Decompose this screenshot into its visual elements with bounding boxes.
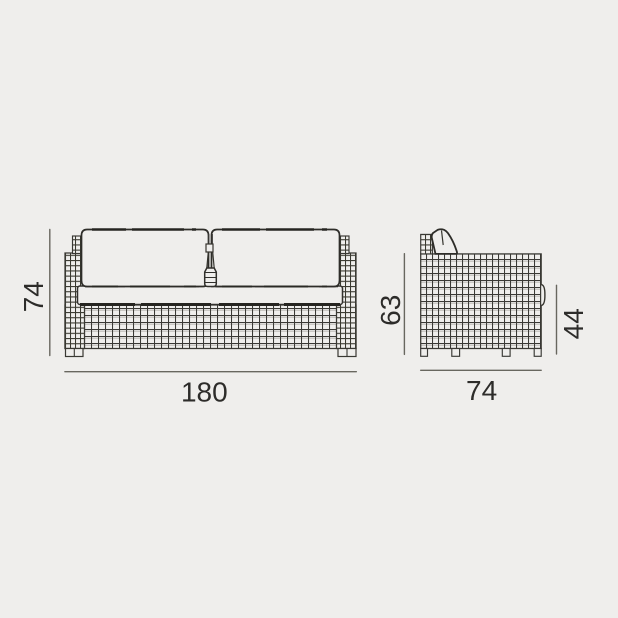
svg-text:74: 74	[18, 281, 49, 312]
svg-text:74: 74	[466, 375, 497, 406]
svg-text:63: 63	[375, 295, 406, 326]
svg-text:44: 44	[558, 308, 589, 339]
svg-text:180: 180	[181, 377, 228, 408]
